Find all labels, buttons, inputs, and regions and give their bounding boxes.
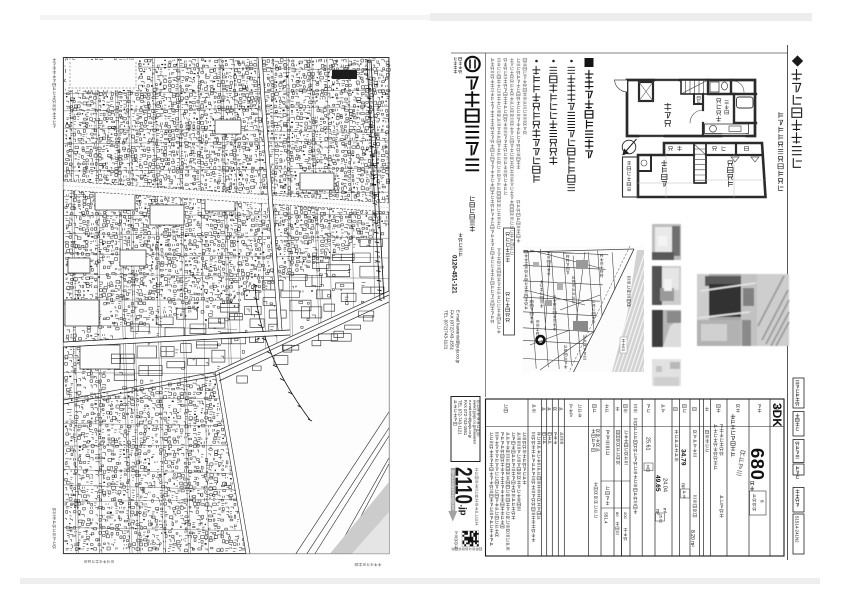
svg-text:E-mail kawanisi@jyuju.co.jp: E-mail kawanisi@jyuju.co.jp [456,310,461,364]
svg-text:8: 8 [760,500,765,503]
svg-text:.jp: .jp [458,505,469,516]
svg-text:34.79: 34.79 [680,449,687,466]
svg-text:680: 680 [747,448,768,480]
svg-text:24.04: 24.04 [662,478,668,492]
svg-text:8.20 m²: 8.20 m² [689,530,695,547]
svg-text:S51.4: S51.4 [604,512,609,524]
svg-text:e-mail info@jyuju.co.jp: e-mail info@jyuju.co.jp [468,400,472,438]
svg-text:15.02: 15.02 [659,514,663,523]
svg-text:0120-451-121: 0120-451-121 [451,255,458,294]
svg-text:2110: 2110 [450,467,477,504]
svg-text:25.61: 25.61 [645,437,651,451]
svg-text:FAX 072-743-1551: FAX 072-743-1551 [463,400,468,436]
svg-text:3DK: 3DK [770,403,784,427]
svg-text:51514-241N2: 51514-241N2 [795,516,800,543]
svg-text:TEL (072)743-1121: TEL (072)743-1121 [444,310,449,350]
svg-text:FAX (072)743-1551: FAX (072)743-1551 [450,310,455,351]
svg-text:TEL 072-743-1121: TEL 072-743-1121 [458,400,463,435]
svg-text:200: 200 [623,512,628,519]
svg-text:49.65: 49.65 [654,475,661,492]
svg-text:80: 80 [615,512,620,517]
svg-text:www2.jyuju.co.jp/kawanisi: www2.jyuju.co.jp/kawanisi [473,400,477,444]
svg-text:m²: m² [680,483,686,489]
